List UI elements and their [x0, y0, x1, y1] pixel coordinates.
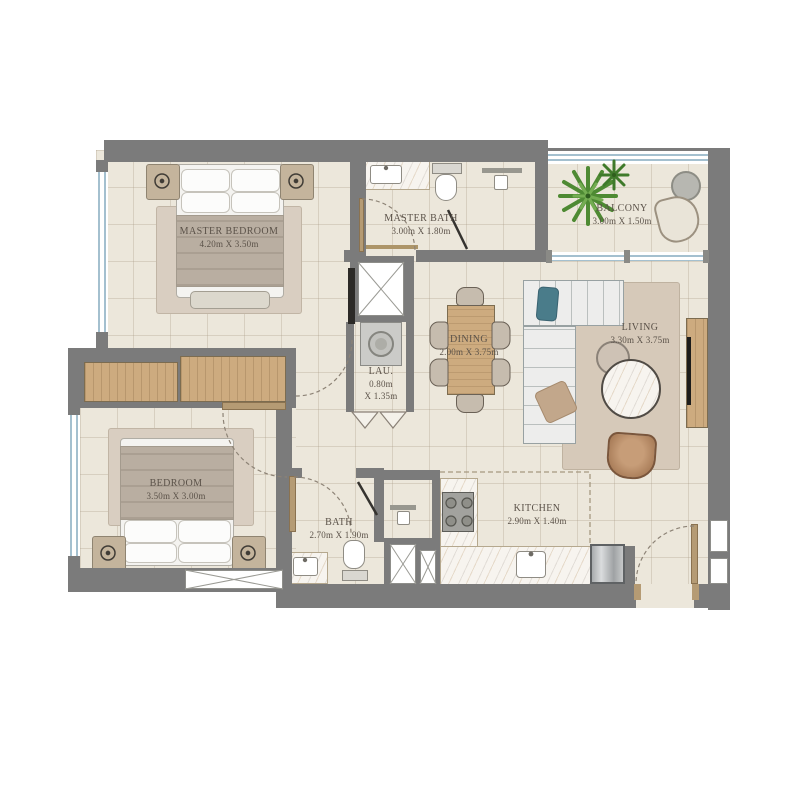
room-dims: 4.20m X 3.50m [180, 238, 279, 250]
wall-niche [710, 520, 728, 552]
shower-head [494, 175, 508, 190]
washing-machine [360, 322, 402, 366]
label-living: LIVING 3.30m X 3.75m [610, 322, 669, 346]
master-bath-door-leaf [359, 198, 364, 252]
nightstand [232, 536, 266, 572]
room-name: LAU. [365, 366, 398, 378]
wardrobe [84, 362, 178, 402]
master-bed-pillow [231, 192, 280, 213]
label-dining: DINING 2.00m X 3.75m [439, 334, 498, 358]
window-sill [185, 570, 283, 589]
wall [416, 250, 548, 262]
kitchen-sink [516, 551, 546, 578]
master-bed-bench [190, 291, 270, 309]
room-name: MASTER BEDROOM [180, 226, 279, 238]
master-bed-pillow [181, 192, 230, 213]
shaft [358, 262, 404, 316]
floor-plan-page: { "plan": { "type": "apartment-floor-pla… [0, 0, 800, 800]
entry-door-post [634, 584, 641, 600]
slider-post [703, 250, 709, 263]
slider-post [624, 250, 630, 263]
room-dims: 2.90m X 1.40m [507, 515, 566, 527]
wall [535, 160, 548, 262]
stove [442, 492, 474, 532]
bedroom-bed-pillow [124, 520, 177, 543]
room-dims: X 1.35m [365, 390, 398, 402]
master-bath-sink [370, 165, 402, 184]
label-laundry: LAU. 0.80m X 1.35m [365, 366, 398, 402]
room-name: LIVING [610, 322, 669, 334]
room-name: DINING [439, 334, 498, 346]
room-dims: 0.80m [365, 378, 398, 390]
wall [406, 322, 414, 412]
bath-toilet [343, 540, 365, 569]
shaft [420, 550, 436, 584]
label-kitchen: KITCHEN 2.90m X 1.40m [507, 503, 566, 527]
dining-chair [456, 394, 484, 413]
nightstand [146, 164, 180, 200]
bedroom-bed-pillow [124, 543, 177, 563]
room-dims: 2.70m X 1.90m [309, 529, 368, 541]
master-bed-pillow [181, 169, 230, 192]
master-bed-pillow [231, 169, 280, 192]
room-name: BATH [309, 517, 368, 529]
shower-head [397, 511, 410, 525]
bedroom-bed-pillow [178, 520, 231, 543]
room-dims: 3.00m X 1.80m [384, 225, 458, 237]
fridge [590, 544, 625, 584]
entry-opening [636, 584, 694, 608]
room-name: MASTER BATH [384, 213, 458, 225]
dining-chair [456, 287, 484, 306]
shaft [390, 544, 416, 584]
slider-post [546, 250, 552, 263]
label-bedroom: BEDROOM 3.50m X 3.00m [146, 478, 205, 502]
wall [346, 322, 354, 412]
room-dims: 2.00m X 3.75m [439, 346, 498, 358]
master-bedroom-door-leaf [348, 268, 355, 324]
room-dims: 3.30m X 3.75m [610, 334, 669, 346]
bath-toilet-tank [342, 570, 368, 581]
wall-niche [710, 558, 728, 584]
label-master-bedroom: MASTER BEDROOM 4.20m X 3.50m [180, 226, 279, 250]
nightstand [92, 536, 126, 572]
label-balcony: BALCONY 3.00m X 1.50m [592, 203, 651, 227]
dining-chair [430, 359, 449, 387]
room-name: BALCONY [592, 203, 651, 215]
tv [687, 337, 691, 405]
wall [104, 140, 548, 162]
shower-rail [390, 505, 416, 510]
balcony-window [548, 151, 708, 164]
label-master-bath: MASTER BATH 3.00m X 1.80m [384, 213, 458, 237]
room-dims: 3.50m X 3.00m [146, 490, 205, 502]
sofa-pillow-teal [536, 286, 560, 322]
coffee-table-marble [601, 359, 661, 419]
wardrobe [180, 356, 286, 402]
entry-door-leaf [691, 524, 698, 584]
room-dims: 3.00m X 1.50m [592, 215, 651, 227]
room-name: BEDROOM [146, 478, 205, 490]
bath-door-leaf [289, 476, 296, 532]
bedroom-door-leaf [222, 402, 286, 410]
master-bath-toilet [435, 174, 457, 201]
wall [432, 478, 440, 546]
nightstand [280, 164, 314, 200]
bath-sink [293, 557, 318, 576]
entry-door-post [692, 584, 699, 600]
bedroom-bed-pillow [178, 543, 231, 563]
master-bath-shelf [366, 245, 418, 249]
window [68, 415, 80, 556]
wall [374, 472, 384, 542]
room-name: KITCHEN [507, 503, 566, 515]
wall [625, 546, 635, 584]
shower-rail [482, 168, 522, 173]
label-bath: BATH 2.70m X 1.90m [309, 517, 368, 541]
master-bath-toilet-tank [432, 163, 462, 174]
window [96, 172, 108, 332]
dining-chair [492, 359, 511, 387]
